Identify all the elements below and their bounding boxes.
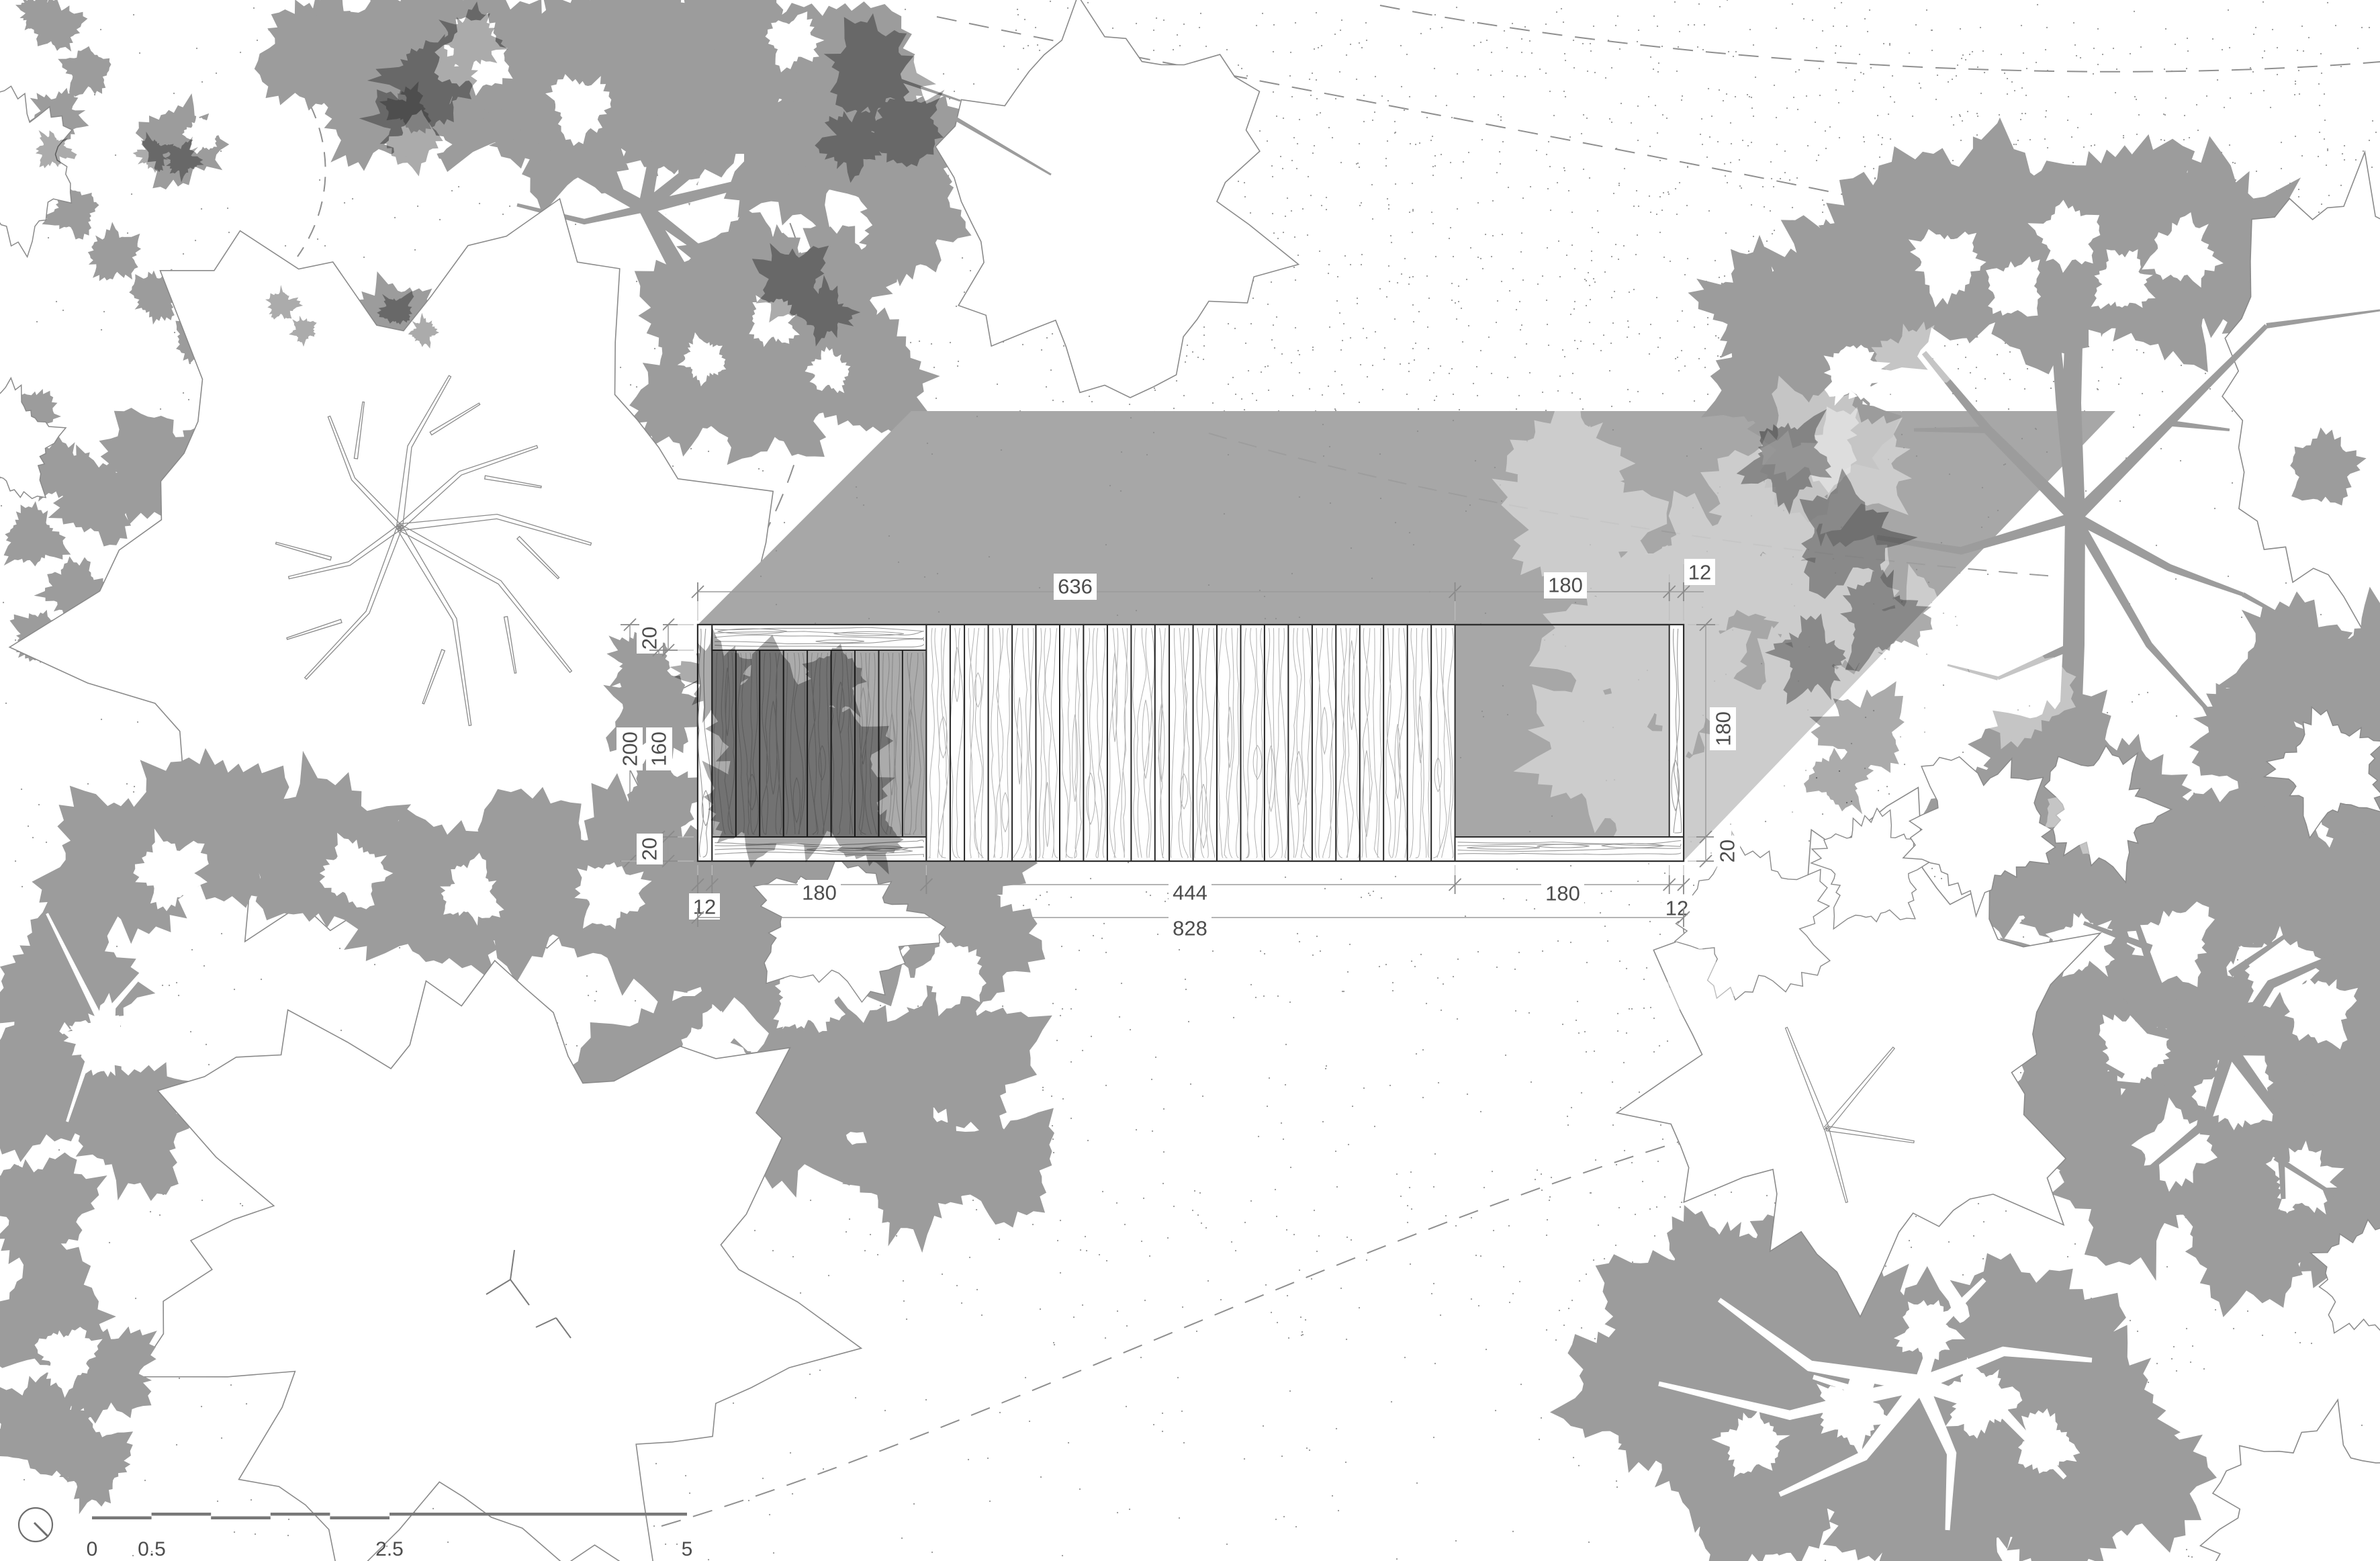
svg-text:20: 20 — [1716, 840, 1739, 862]
svg-text:828: 828 — [1173, 917, 1207, 940]
svg-text:12: 12 — [693, 895, 716, 919]
svg-text:160: 160 — [647, 731, 671, 766]
svg-text:20: 20 — [638, 838, 661, 860]
svg-text:180: 180 — [1545, 882, 1580, 905]
svg-text:636: 636 — [1058, 575, 1093, 598]
svg-text:5: 5 — [682, 1538, 693, 1560]
svg-text:0.5: 0.5 — [138, 1538, 166, 1560]
svg-text:180: 180 — [1712, 711, 1735, 746]
svg-text:12: 12 — [1688, 561, 1711, 584]
svg-text:444: 444 — [1173, 881, 1207, 905]
svg-text:2.5: 2.5 — [375, 1538, 404, 1560]
svg-text:0: 0 — [87, 1538, 98, 1560]
svg-text:180: 180 — [1548, 574, 1583, 597]
svg-text:200: 200 — [619, 731, 642, 766]
svg-text:20: 20 — [638, 627, 661, 650]
svg-text:180: 180 — [802, 881, 837, 905]
